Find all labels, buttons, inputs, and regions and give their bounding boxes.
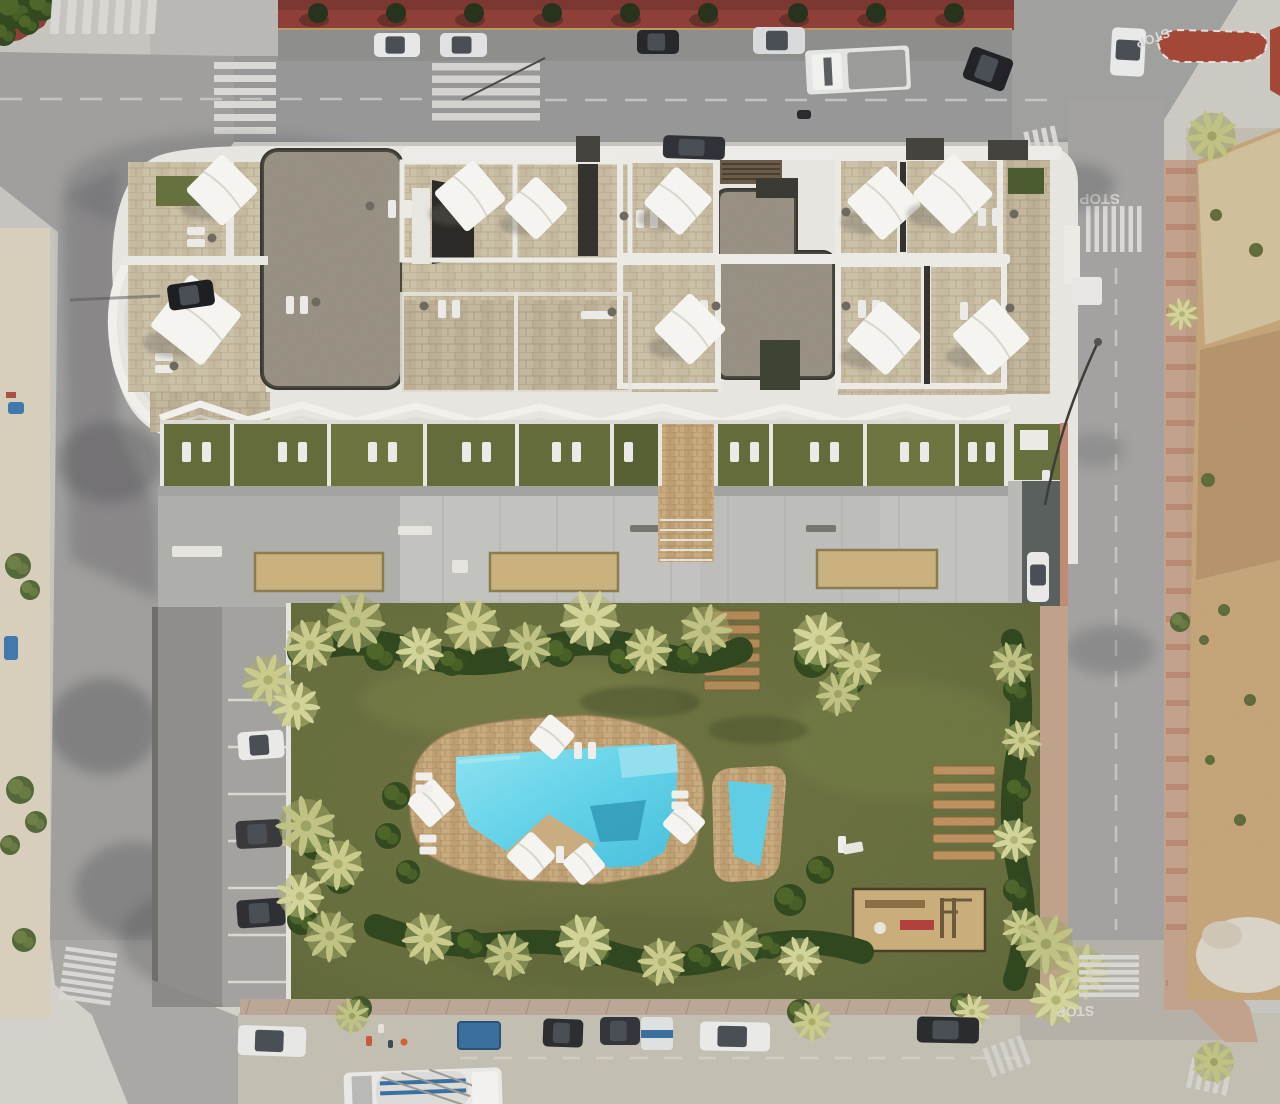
svg-text:STOP: STOP xyxy=(1056,1003,1094,1020)
